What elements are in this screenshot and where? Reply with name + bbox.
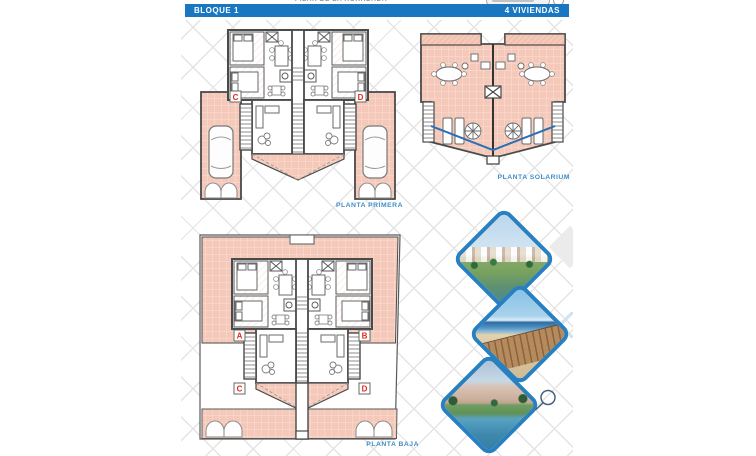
unit-letter-a: A	[237, 332, 243, 341]
compass-icon	[533, 388, 557, 412]
unit-letter-b: B	[362, 332, 368, 341]
residence-render-image	[452, 207, 557, 312]
cutoff-logo-bar	[492, 0, 534, 2]
unit-letter-c: C	[233, 93, 239, 102]
block-title: BLOQUE 1	[194, 6, 239, 15]
unit-letter-c: C	[237, 385, 243, 394]
dwelling-count: 4 VIVIENDAS	[505, 6, 560, 15]
floor-plan-primera: C D	[200, 28, 396, 202]
location-title: PILAR DE LA HORADADA	[276, 0, 406, 3]
driveway-terrace	[252, 154, 344, 180]
floor-plan-solarium	[413, 28, 573, 170]
bottom-step	[487, 156, 499, 164]
entry-gate	[296, 431, 308, 439]
label-planta-baja: PLANTA BAJA	[341, 441, 419, 448]
brochure-page: PILAR DE LA HORADADA BLOQUE 1 4 VIVIENDA…	[181, 0, 573, 456]
header-bar: BLOQUE 1 4 VIVIENDAS	[185, 4, 569, 17]
garage-arches	[205, 183, 391, 198]
unit-letter-d: D	[358, 93, 364, 102]
stair-core	[292, 30, 304, 162]
top-notch	[290, 235, 314, 244]
label-planta-solarium: PLANTA SOLARIUM	[475, 174, 570, 181]
lattice-diamond-accent	[549, 226, 573, 268]
floor-plan-baja: A B C D	[198, 233, 406, 441]
photo-diamond-residence	[452, 207, 557, 312]
unit-letter-d: D	[362, 385, 368, 394]
label-planta-primera: PLANTA PRIMERA	[331, 202, 403, 209]
stair-hatch	[485, 86, 501, 98]
